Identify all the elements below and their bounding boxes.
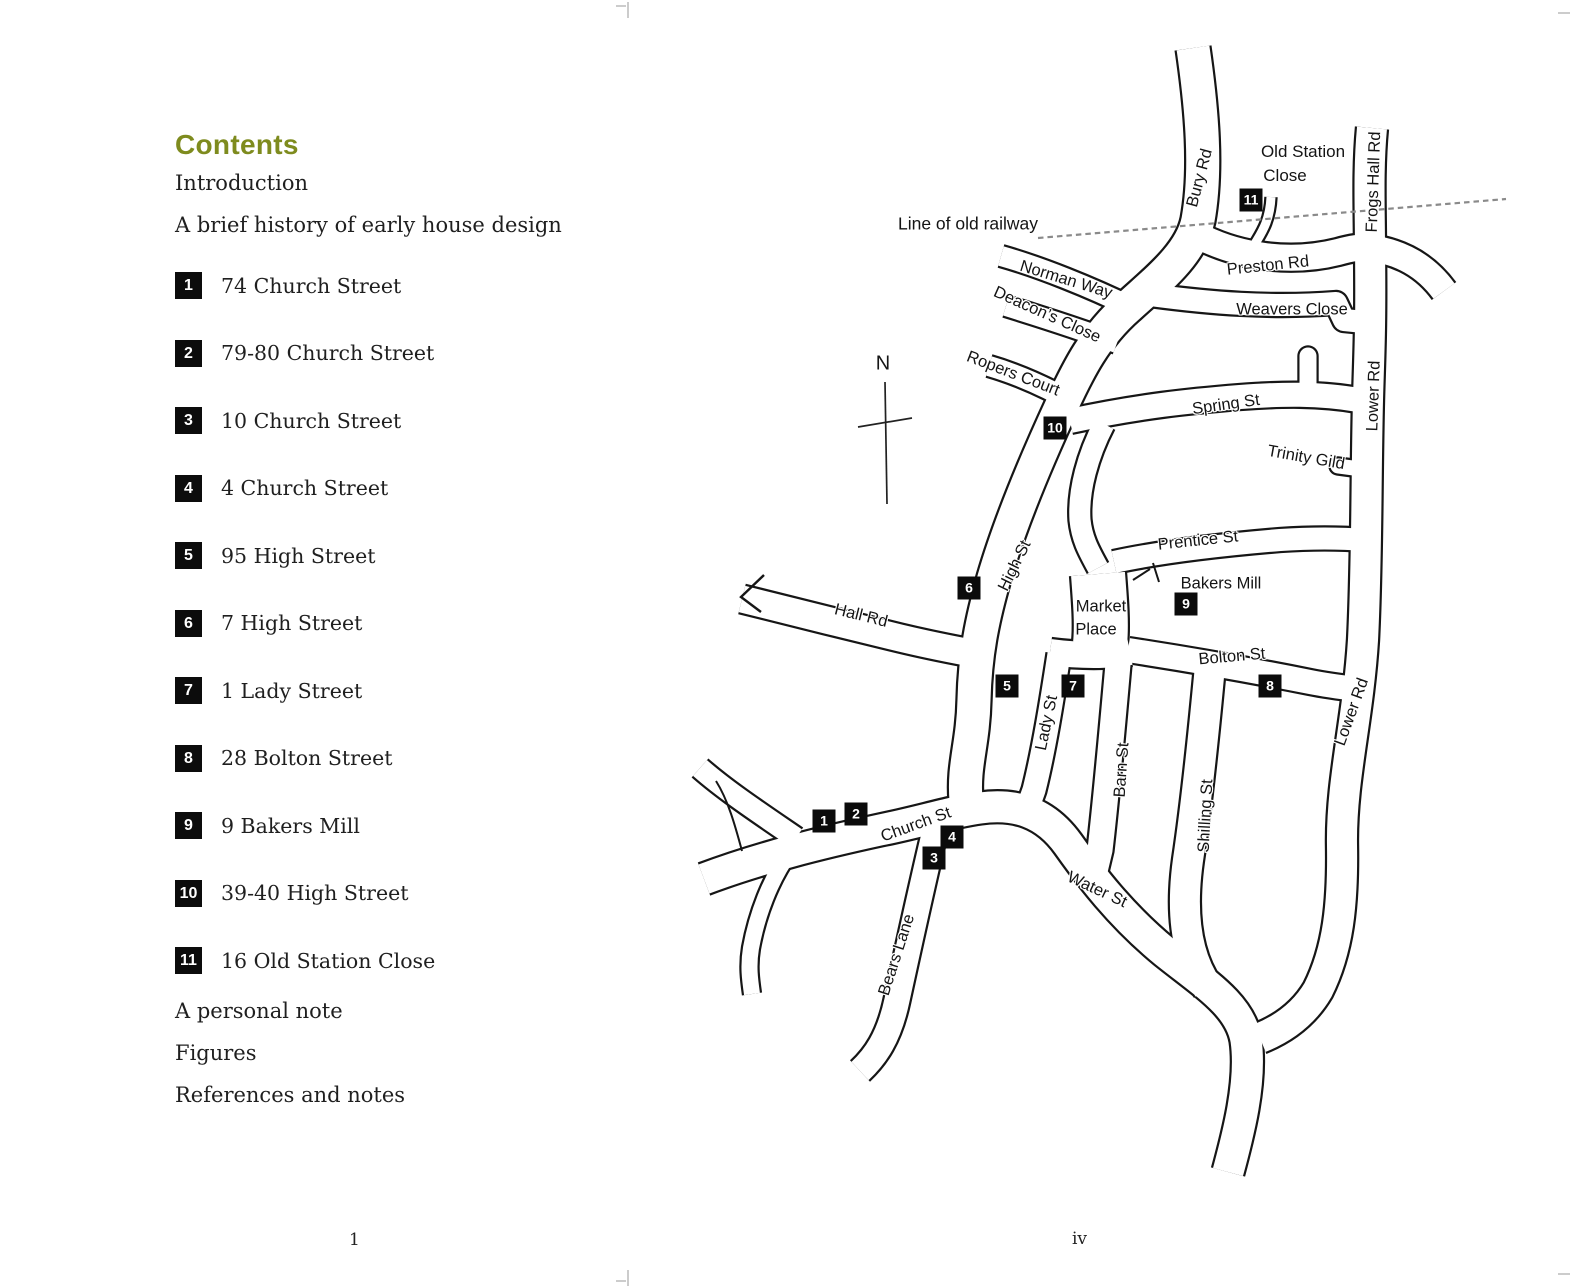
street-map	[0, 0, 1570, 1287]
map-marker-6: 6	[958, 577, 981, 600]
map-label-line-of-old-railway: Line of old railway	[898, 214, 1038, 235]
map-label-shilling-st: Shilling St	[1195, 779, 1218, 853]
map-marker-11: 11	[1240, 189, 1263, 212]
map-label-close: Close	[1263, 166, 1306, 186]
book-spread: Contents IntroductionA brief history of …	[0, 0, 1570, 1287]
map-marker-8: 8	[1259, 675, 1282, 698]
map-marker-3: 3	[923, 847, 946, 870]
map-marker-5: 5	[996, 675, 1019, 698]
road-west-open-road	[700, 768, 796, 838]
map-label-place: Place	[1075, 621, 1116, 640]
map-marker-7: 7	[1062, 675, 1085, 698]
map-label-old-station: Old Station	[1261, 142, 1345, 162]
map-label-weavers-close: Weavers Close	[1236, 301, 1348, 320]
right-page-number: iv	[1072, 1229, 1087, 1249]
map-label-bakers-mill: Bakers Mill	[1181, 575, 1262, 594]
map-marker-9: 9	[1175, 593, 1198, 616]
map-marker-1: 1	[813, 810, 836, 833]
map-label-frogs-hall-rd: Frogs Hall Rd	[1363, 131, 1386, 232]
map-label-barn-st: Barn St	[1111, 742, 1134, 798]
map-label-market: Market	[1076, 598, 1126, 617]
compass-icon	[858, 382, 912, 504]
map-marker-2: 2	[845, 803, 868, 826]
compass-north-label: N	[876, 353, 890, 376]
map-marker-4: 4	[941, 826, 964, 849]
map-label-lower-rd: Lower Rd	[1363, 360, 1384, 431]
map-marker-10: 10	[1044, 417, 1067, 440]
